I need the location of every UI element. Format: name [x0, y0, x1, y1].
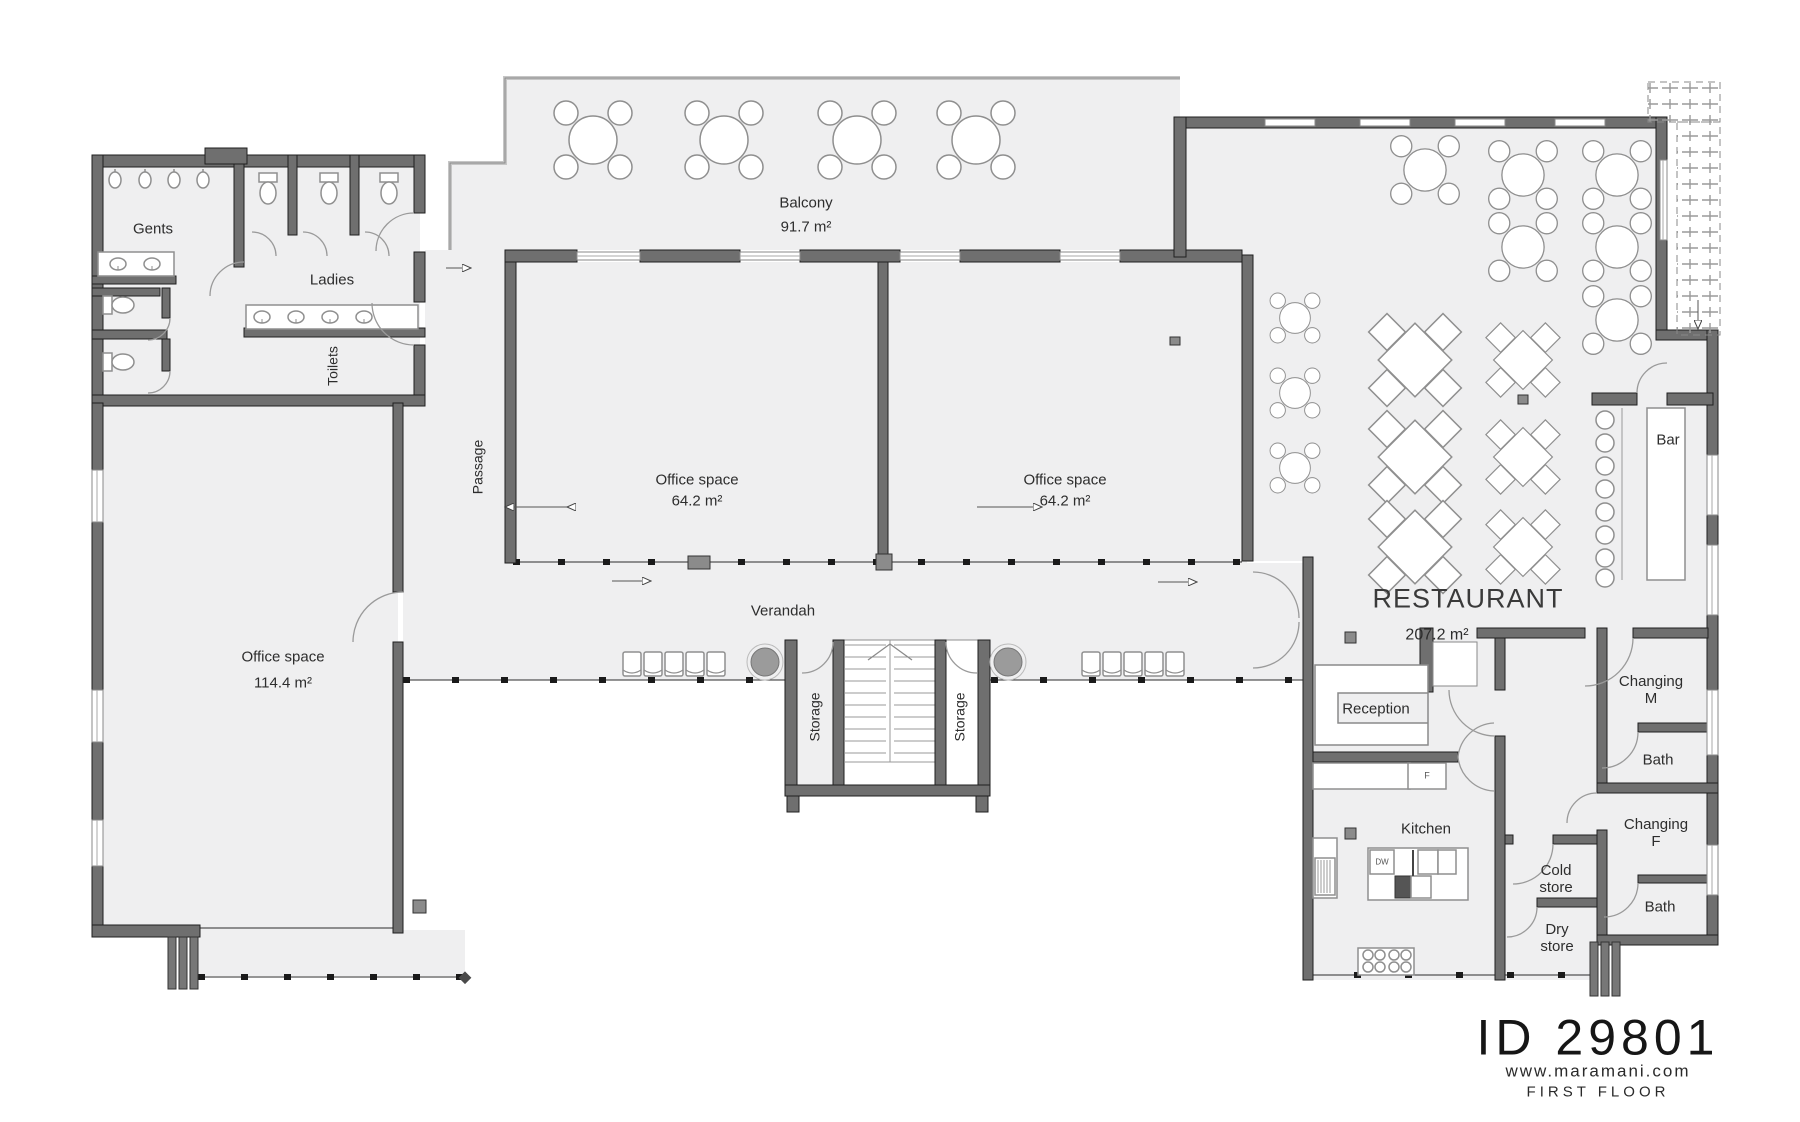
room-label-passage: Passage	[470, 440, 487, 494]
room-label-storage-left: Storage	[807, 692, 824, 741]
website: www.maramani.com	[1505, 1063, 1690, 1080]
planter	[994, 648, 1022, 676]
room-label-balcony: Balcony	[779, 195, 832, 212]
room-area-office-mid: 64.2 m²	[672, 493, 723, 510]
room-label-restaurant: RESTAURANT	[1372, 591, 1563, 608]
room-label-verandah: Verandah	[751, 603, 815, 620]
room-label-changing-f: Changing F	[1624, 816, 1688, 850]
room-label-office-left: Office space	[241, 649, 324, 666]
floor-plan-page: Gents Ladies Toilets Passage Balcony 91.…	[0, 0, 1800, 1122]
room-label-kitchen: Kitchen	[1401, 821, 1451, 838]
room-label-reception: Reception	[1342, 701, 1410, 718]
floor-plan-drawing	[0, 0, 1800, 1122]
appliance-label-dishwasher: DW	[1375, 854, 1388, 871]
planter	[751, 648, 779, 676]
room-area-restaurant: 207.2 m²	[1405, 627, 1468, 644]
room-label-dry-store: Dry store	[1540, 921, 1573, 955]
room-label-gents: Gents	[133, 221, 173, 238]
drainer	[1315, 858, 1335, 895]
room-label-bath-m: Bath	[1643, 752, 1674, 769]
plan-id: ID 29801	[1477, 1030, 1720, 1047]
room-label-office-right: Office space	[1023, 472, 1106, 489]
room-label-storage-right: Storage	[952, 692, 969, 741]
room-label-toilets: Toilets	[325, 346, 342, 386]
floor-title: FIRST FLOOR	[1527, 1084, 1670, 1101]
stove	[1358, 948, 1414, 975]
room-label-changing-m: Changing M	[1619, 673, 1683, 707]
floor-areas	[98, 80, 1718, 980]
room-label-bath-f: Bath	[1645, 899, 1676, 916]
room-area-office-right: 64.2 m²	[1040, 493, 1091, 510]
room-area-office-left: 114.4 m²	[254, 675, 312, 692]
room-area-balcony: 91.7 m²	[781, 219, 832, 236]
appliance-label-fridge: F	[1424, 768, 1430, 785]
room-label-bar: Bar	[1656, 432, 1679, 449]
room-label-ladies: Ladies	[310, 272, 354, 289]
room-label-office-mid: Office space	[655, 472, 738, 489]
room-label-cold-store: Cold store	[1539, 862, 1572, 896]
